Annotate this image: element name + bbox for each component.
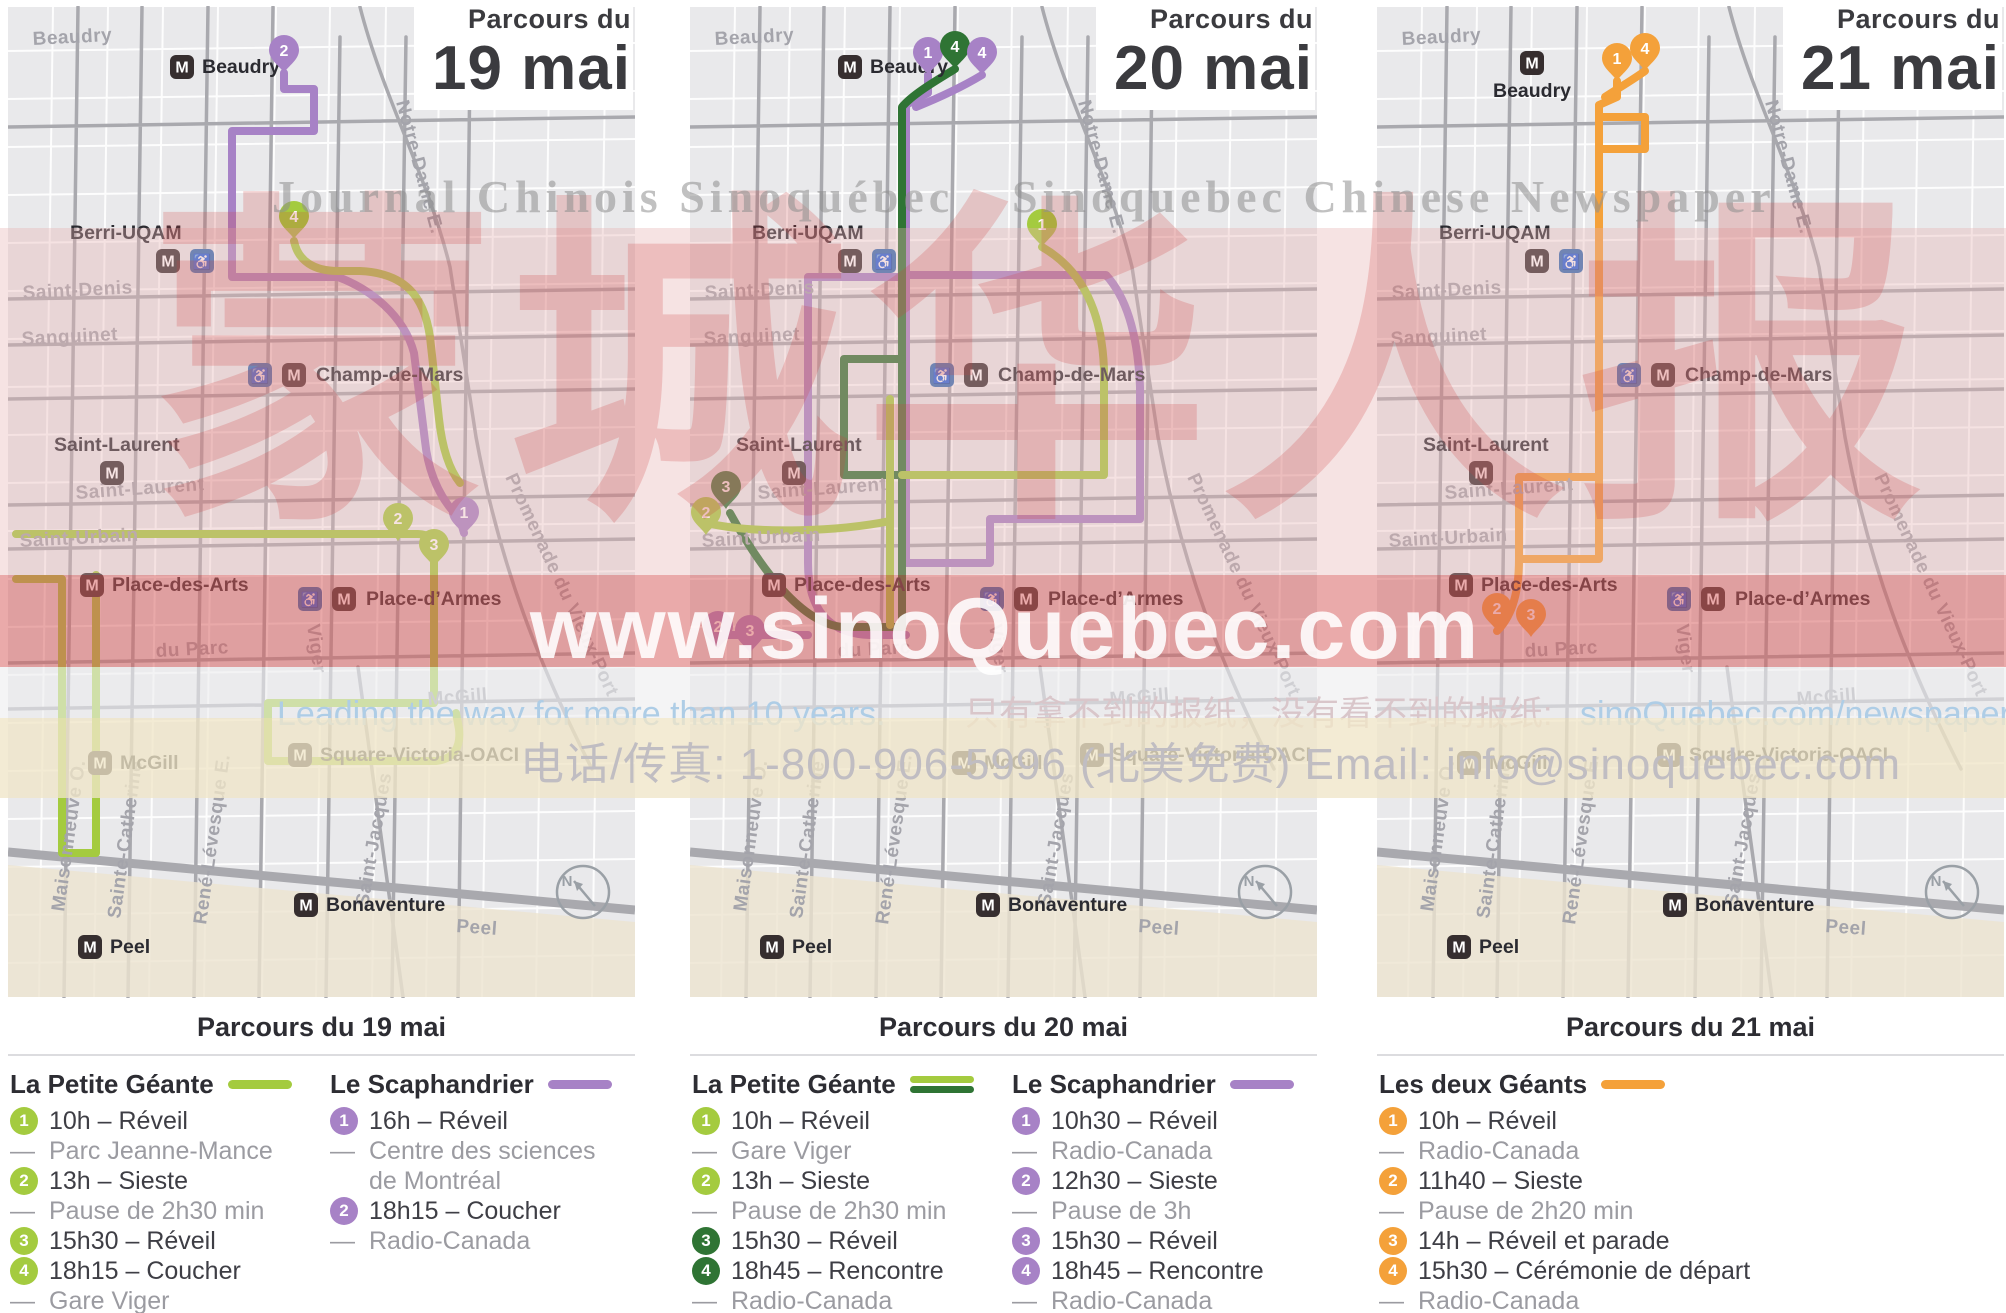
- divider: [1377, 1054, 2004, 1056]
- street-label-du-parc: du Parc: [155, 637, 229, 662]
- metro-icon: [1520, 51, 1544, 75]
- metro-icon: [1447, 935, 1471, 959]
- svg-text:Saint-Laurent: Saint-Laurent: [736, 434, 862, 456]
- svg-text:3: 3: [722, 479, 731, 496]
- map-header-20-mai: Parcours du 20 mai: [1096, 0, 1315, 110]
- street-label-mcgill: McGill: [1109, 685, 1170, 710]
- station-mcgill: McGill: [88, 751, 179, 775]
- svg-text:Place-des-Arts: Place-des-Arts: [1481, 574, 1618, 596]
- header-kicker: Parcours du: [432, 4, 631, 35]
- legend-item: 110h – Réveil: [10, 1106, 328, 1136]
- svg-text:3: 3: [430, 537, 439, 554]
- svg-text:Saint-Laurent: Saint-Laurent: [54, 434, 180, 456]
- svg-text:2: 2: [702, 505, 711, 522]
- station-mcgill: McGill: [952, 751, 1043, 775]
- station-square-victoria-oaci: Square-Victoria-OACI: [1657, 743, 1888, 767]
- header-date: 20 mai: [1114, 37, 1313, 100]
- metro-icon: [156, 249, 180, 273]
- metro-icon: [282, 363, 306, 387]
- legend-item: —Pause de 2h20 min: [1379, 1196, 1697, 1226]
- svg-text:4: 4: [290, 209, 299, 226]
- svg-text:1: 1: [924, 45, 933, 62]
- metro-icon: [1449, 573, 1473, 597]
- svg-text:Champ-de-Mars: Champ-de-Mars: [998, 364, 1146, 386]
- svg-text:Beaudry: Beaudry: [1493, 80, 1571, 102]
- legend-item: 418h15 – Coucher: [10, 1256, 328, 1286]
- metro-icon: [1457, 751, 1481, 775]
- street-label-mcgill: McGill: [1796, 685, 1857, 710]
- svg-text:1: 1: [460, 505, 469, 522]
- map-20-mai: Beaudry Notre-Dame E. Saint-Denis Sangui…: [690, 6, 1317, 998]
- wheelchair-icon: [298, 587, 322, 611]
- svg-text:4: 4: [1641, 41, 1650, 58]
- metro-icon: [1525, 249, 1549, 273]
- wheelchair-icon: [1667, 587, 1691, 611]
- metro-icon: [1657, 743, 1681, 767]
- map-panel-19-mai: Beaudry Notre-Dame E. Saint-Denis Sangui…: [8, 0, 635, 1313]
- legend-le-scaphandrier-19: Le Scaphandrier 116h – Réveil —Centre de…: [330, 1066, 648, 1256]
- metro-icon: [1469, 461, 1493, 485]
- metro-icon: [78, 935, 102, 959]
- map-panel-20-mai: Beaudry Notre-Dame E. Saint-Denis Sangui…: [690, 0, 1317, 1313]
- metro-icon: [88, 751, 112, 775]
- legend-item: 218h15 – Coucher: [330, 1196, 648, 1226]
- legend-item: 110h30 – Réveil: [1012, 1106, 1330, 1136]
- legend-item: 415h30 – Cérémonie de départ: [1379, 1256, 1697, 1286]
- metro-icon: [288, 743, 312, 767]
- metro-icon: [332, 587, 356, 611]
- legend-item: —Radio-Canada: [1012, 1136, 1330, 1166]
- divider: [8, 1054, 635, 1056]
- route-swatch: [1230, 1080, 1294, 1089]
- metro-icon: [1701, 587, 1725, 611]
- legend-item: 211h40 – Sieste: [1379, 1166, 1697, 1196]
- wheelchair-icon: [980, 587, 1004, 611]
- svg-text:2: 2: [1493, 601, 1502, 618]
- street-label-du-parc: du Parc: [837, 637, 911, 662]
- metro-icon: [294, 893, 318, 917]
- metro-icon: [838, 249, 862, 273]
- svg-text:Bonaventure: Bonaventure: [1695, 894, 1814, 916]
- station-square-victoria-oaci: Square-Victoria-OACI: [1080, 743, 1311, 767]
- route-swatch: [228, 1080, 292, 1089]
- legend-item: 116h – Réveil: [330, 1106, 648, 1136]
- metro-icon: [838, 55, 862, 79]
- metro-icon: [964, 363, 988, 387]
- metro-icon: [760, 935, 784, 959]
- legend-item: —Radio-Canada: [1379, 1136, 1697, 1166]
- legend-item: 212h30 – Sieste: [1012, 1166, 1330, 1196]
- station-bonaventure: Bonaventure: [294, 893, 445, 917]
- legend-item: —Radio-Canada: [692, 1286, 1010, 1313]
- svg-text:Berri-UQAM: Berri-UQAM: [70, 222, 182, 244]
- legend-item: —Gare Viger: [10, 1286, 328, 1313]
- legend-le-scaphandrier-20: Le Scaphandrier 110h30 – Réveil —Radio-C…: [1012, 1066, 1330, 1313]
- legend-title: Les deux Géants: [1379, 1066, 1697, 1102]
- street-label-peel: Peel: [1138, 916, 1180, 940]
- wheelchair-icon: [1617, 363, 1641, 387]
- wheelchair-icon: [930, 363, 954, 387]
- svg-text:4: 4: [978, 45, 987, 62]
- svg-text:McGill: McGill: [984, 752, 1043, 774]
- legend-item: —Radio-Canada: [1012, 1286, 1330, 1313]
- svg-text:3: 3: [746, 623, 755, 640]
- legend-title: La Petite Géante: [692, 1066, 1010, 1102]
- legend-item: 315h30 – Réveil: [1012, 1226, 1330, 1256]
- svg-text:2: 2: [394, 511, 403, 528]
- street-label-mcgill: McGill: [427, 685, 488, 710]
- divider: [690, 1054, 1317, 1056]
- legend-item: —Centre des sciences: [330, 1136, 648, 1166]
- legend-item: —Radio-Canada: [1379, 1286, 1697, 1313]
- svg-text:Champ-de-Mars: Champ-de-Mars: [316, 364, 464, 386]
- legend-title: Le Scaphandrier: [1012, 1066, 1330, 1102]
- legend-item: —Gare Viger: [692, 1136, 1010, 1166]
- legend-item: —Pause de 2h30 min: [10, 1196, 328, 1226]
- map-panel-21-mai: Beaudry Notre-Dame E. Saint-Denis Sangui…: [1377, 0, 2004, 1313]
- legend-item: —Pause de 2h30 min: [692, 1196, 1010, 1226]
- street-label-beaudry: Beaudry: [1401, 25, 1482, 50]
- street-label-du-parc: du Parc: [1524, 637, 1598, 662]
- metro-icon: [170, 55, 194, 79]
- legend-title: La Petite Géante: [10, 1066, 328, 1102]
- street-label-peel: Peel: [1825, 916, 1867, 940]
- header-kicker: Parcours du: [1801, 4, 2000, 35]
- station-peel: Peel: [1447, 935, 1519, 959]
- legend-item: 315h30 – Réveil: [692, 1226, 1010, 1256]
- street-label-beaudry: Beaudry: [32, 25, 113, 50]
- metro-icon: [762, 573, 786, 597]
- map-21-mai: Beaudry Notre-Dame E. Saint-Denis Sangui…: [1377, 6, 2004, 998]
- map-caption: Parcours du 19 mai: [8, 1012, 635, 1043]
- svg-text:2: 2: [280, 43, 289, 60]
- svg-text:McGill: McGill: [120, 752, 179, 774]
- metro-icon: [782, 461, 806, 485]
- svg-text:1: 1: [1038, 217, 1047, 234]
- header-date: 19 mai: [432, 37, 631, 100]
- parade-routes-poster: M ♿ N Beaudry Notre-Dame: [0, 0, 2006, 1313]
- svg-text:Bonaventure: Bonaventure: [326, 894, 445, 916]
- legend-item: —Pause de 3h: [1012, 1196, 1330, 1226]
- svg-text:Berri-UQAM: Berri-UQAM: [1439, 222, 1551, 244]
- route-swatch: [548, 1080, 612, 1089]
- map-19-mai: Beaudry Notre-Dame E. Saint-Denis Sangui…: [8, 6, 635, 998]
- metro-icon: [1080, 743, 1104, 767]
- legend-item: 110h – Réveil: [692, 1106, 1010, 1136]
- legend-item: 315h30 – Réveil: [10, 1226, 328, 1256]
- svg-text:Place-d’Armes: Place-d’Armes: [1048, 588, 1184, 610]
- legend-item: 418h45 – Rencontre: [1012, 1256, 1330, 1286]
- map-header-19-mai: Parcours du 19 mai: [414, 0, 633, 110]
- map-caption: Parcours du 20 mai: [690, 1012, 1317, 1043]
- svg-text:Square-Victoria-OACI: Square-Victoria-OACI: [1689, 744, 1888, 766]
- metro-icon: [952, 751, 976, 775]
- svg-text:Peel: Peel: [792, 936, 832, 958]
- header-date: 21 mai: [1801, 37, 2000, 100]
- route-swatch: [1601, 1080, 1665, 1089]
- svg-text:1: 1: [1613, 51, 1622, 68]
- legend-item: —Parc Jeanne-Mance: [10, 1136, 328, 1166]
- legend-la-petite-geante-19: La Petite Géante 110h – Réveil —Parc Jea…: [10, 1066, 328, 1313]
- svg-text:Peel: Peel: [1479, 936, 1519, 958]
- station-mcgill: McGill: [1457, 751, 1548, 775]
- wheelchair-icon: [1559, 249, 1583, 273]
- legend-les-deux-geants-21: Les deux Géants 110h – Réveil —Radio-Can…: [1379, 1066, 1697, 1313]
- svg-text:Peel: Peel: [110, 936, 150, 958]
- legend-la-petite-geante-20: La Petite Géante 110h – Réveil —Gare Vig…: [692, 1066, 1010, 1313]
- svg-text:Beaudry: Beaudry: [202, 56, 280, 78]
- svg-text:Square-Victoria-OACI: Square-Victoria-OACI: [1112, 744, 1311, 766]
- station-square-victoria-oaci: Square-Victoria-OACI: [288, 743, 519, 767]
- legend-item: —Radio-Canada: [330, 1226, 648, 1256]
- svg-text:Place-d’Armes: Place-d’Armes: [1735, 588, 1871, 610]
- station-peel: Peel: [78, 935, 150, 959]
- svg-text:Saint-Laurent: Saint-Laurent: [1423, 434, 1549, 456]
- map-header-21-mai: Parcours du 21 mai: [1783, 0, 2002, 110]
- svg-text:Place-des-Arts: Place-des-Arts: [794, 574, 931, 596]
- header-kicker: Parcours du: [1114, 4, 1313, 35]
- station-beaudry: Beaudry: [170, 55, 280, 79]
- metro-icon: [80, 573, 104, 597]
- svg-text:Place-d’Armes: Place-d’Armes: [366, 588, 502, 610]
- station-peel: Peel: [760, 935, 832, 959]
- svg-text:Place-des-Arts: Place-des-Arts: [112, 574, 249, 596]
- metro-icon: [100, 461, 124, 485]
- wheelchair-icon: [872, 249, 896, 273]
- legend-item: 314h – Réveil et parade: [1379, 1226, 1697, 1256]
- legend-item: de Montréal: [330, 1166, 648, 1196]
- svg-text:4: 4: [951, 39, 960, 56]
- metro-icon: [1014, 587, 1038, 611]
- station-bonaventure: Bonaventure: [1663, 893, 1814, 917]
- wheelchair-icon: [190, 249, 214, 273]
- metro-icon: [1651, 363, 1675, 387]
- metro-icon: [1663, 893, 1687, 917]
- legend-item: 213h – Sieste: [10, 1166, 328, 1196]
- svg-text:2: 2: [714, 619, 723, 636]
- svg-text:Berri-UQAM: Berri-UQAM: [752, 222, 864, 244]
- svg-text:McGill: McGill: [1489, 752, 1548, 774]
- legend-title: Le Scaphandrier: [330, 1066, 648, 1102]
- wheelchair-icon: [248, 363, 272, 387]
- svg-text:Bonaventure: Bonaventure: [1008, 894, 1127, 916]
- svg-text:Square-Victoria-OACI: Square-Victoria-OACI: [320, 744, 519, 766]
- legend-item: 110h – Réveil: [1379, 1106, 1697, 1136]
- station-bonaventure: Bonaventure: [976, 893, 1127, 917]
- svg-text:Champ-de-Mars: Champ-de-Mars: [1685, 364, 1833, 386]
- street-label-peel: Peel: [456, 916, 498, 940]
- legend-item: 213h – Sieste: [692, 1166, 1010, 1196]
- route-swatch: [910, 1076, 974, 1093]
- svg-text:3: 3: [1527, 607, 1536, 624]
- street-label-beaudry: Beaudry: [714, 25, 795, 50]
- legend-item: 418h45 – Rencontre: [692, 1256, 1010, 1286]
- metro-icon: [976, 893, 1000, 917]
- map-caption: Parcours du 21 mai: [1377, 1012, 2004, 1043]
